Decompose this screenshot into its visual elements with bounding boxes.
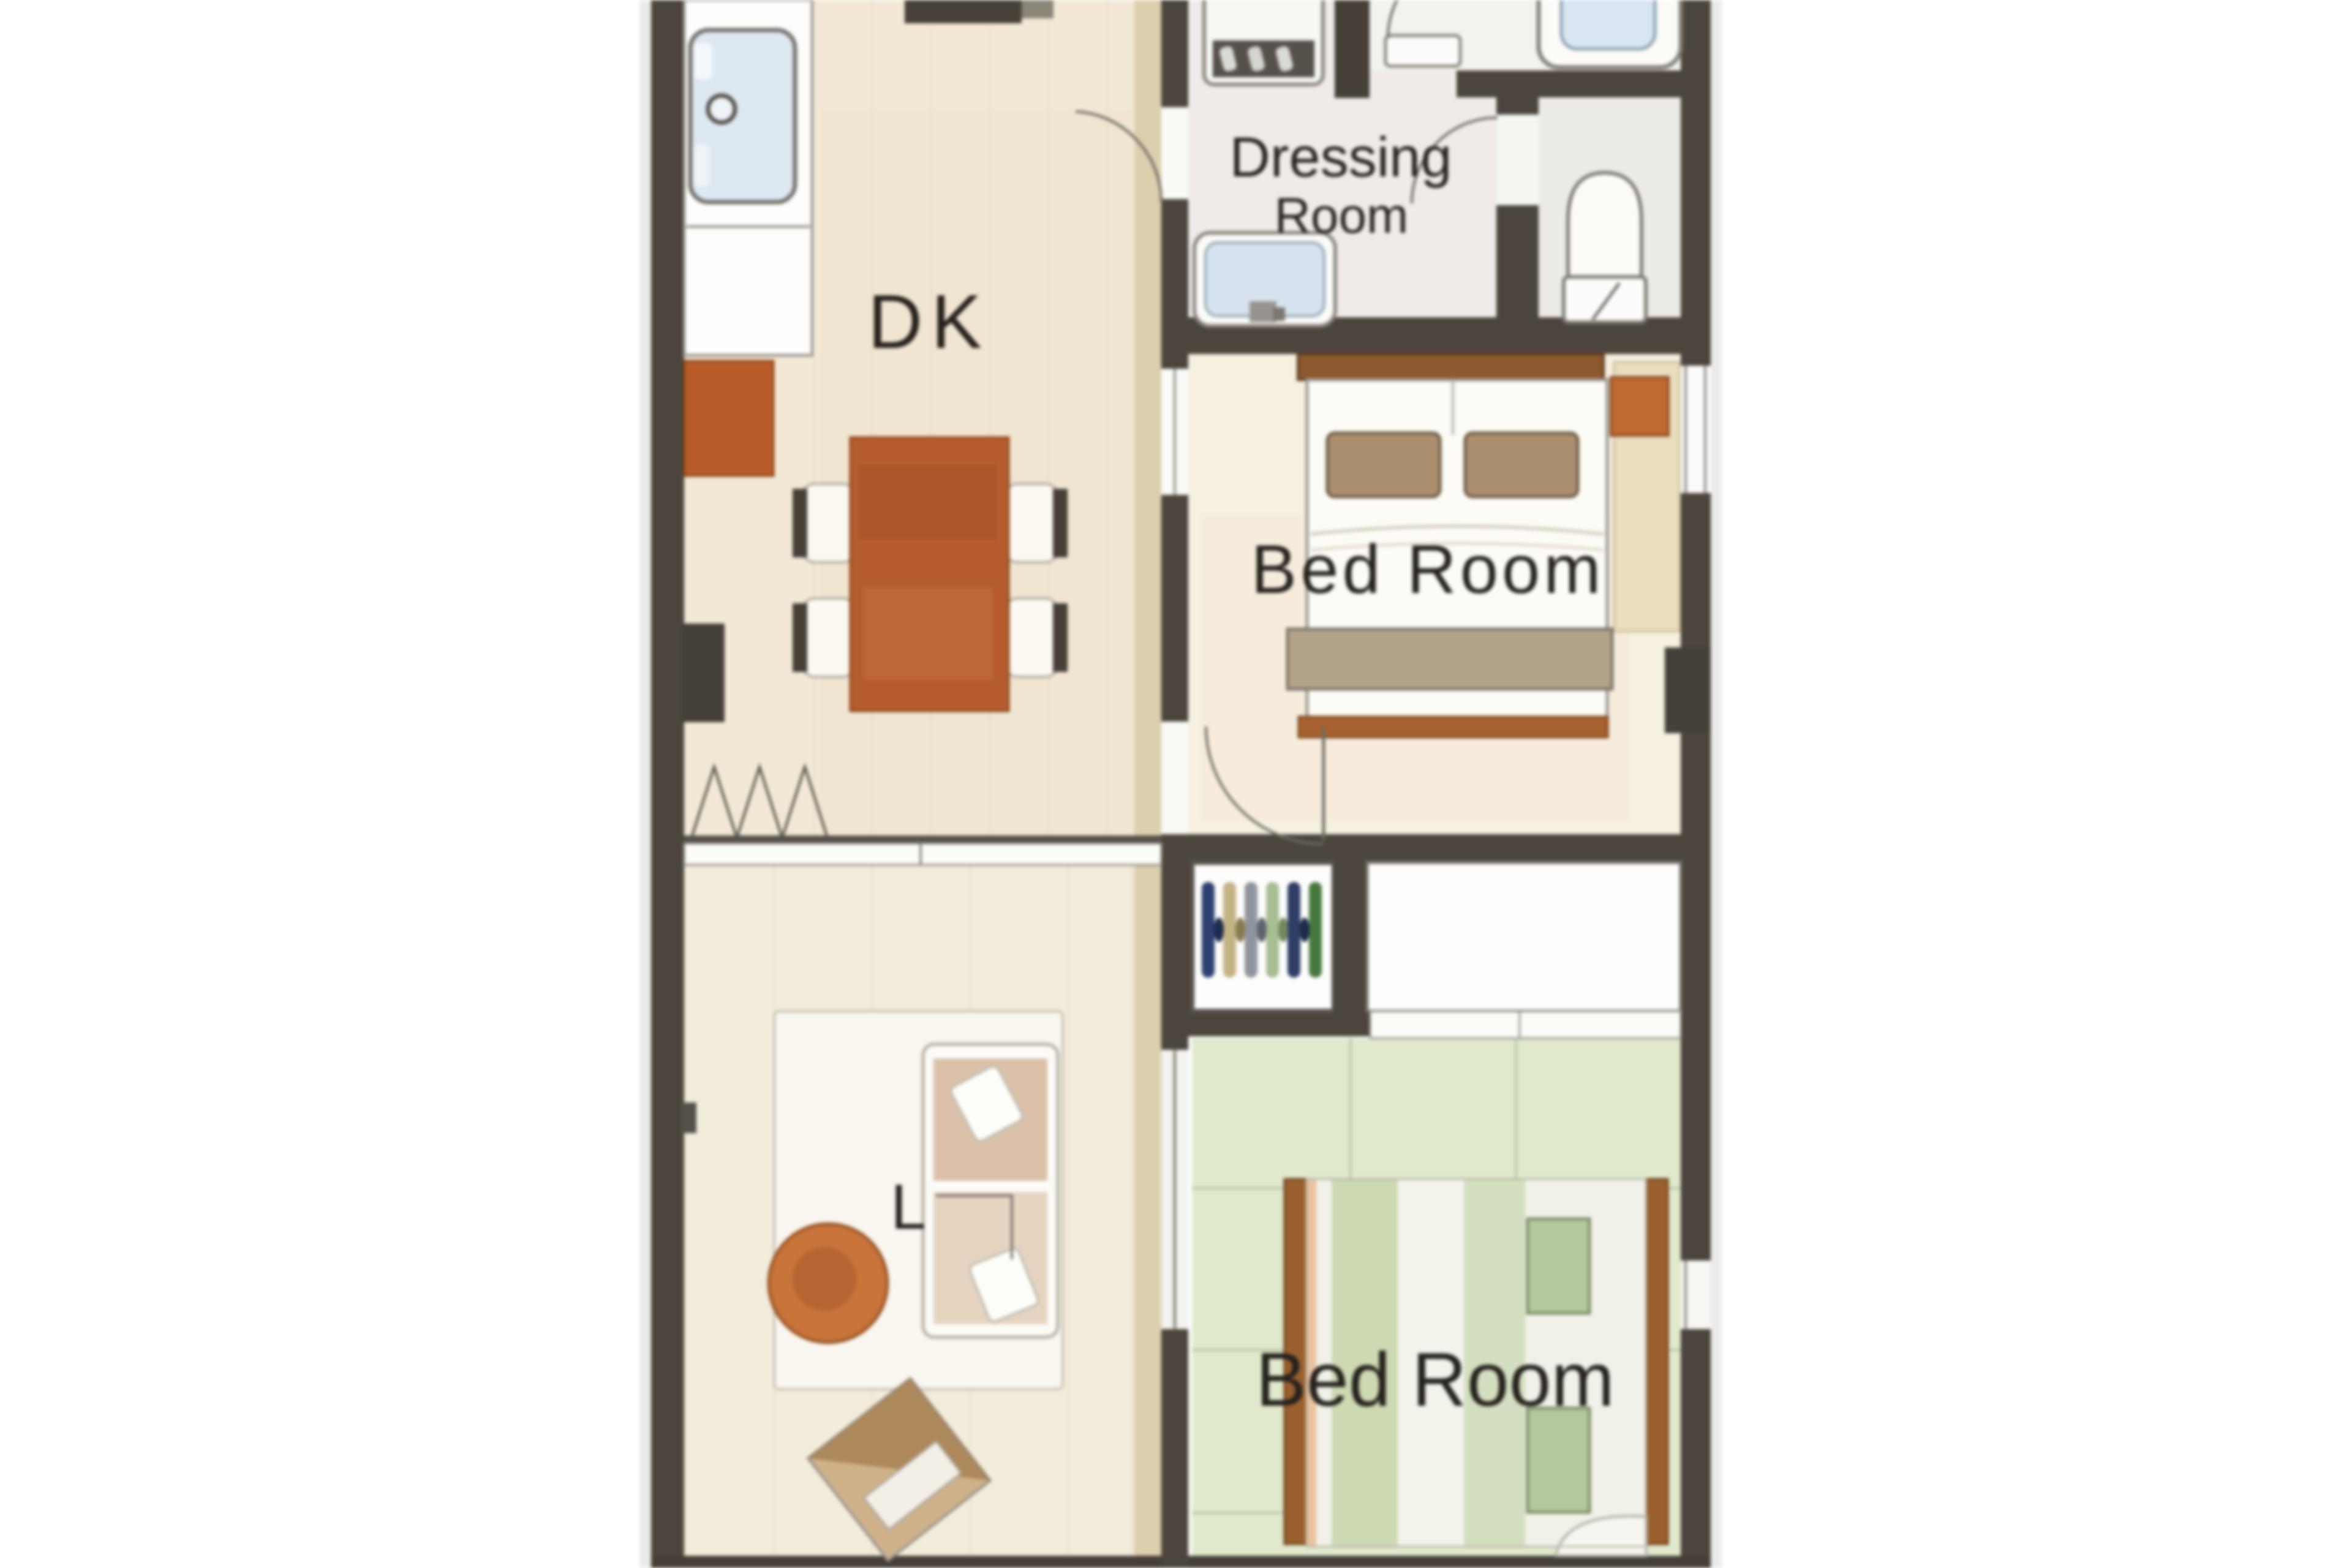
svg-text:Dressing: Dressing [1229,126,1452,189]
svg-text:Bed Room: Bed Room [1256,1338,1615,1422]
svg-text:Room: Room [1275,188,1409,244]
svg-text:DK: DK [868,280,990,364]
svg-text:L: L [891,1172,926,1243]
svg-text:Bed Room: Bed Room [1251,531,1604,608]
